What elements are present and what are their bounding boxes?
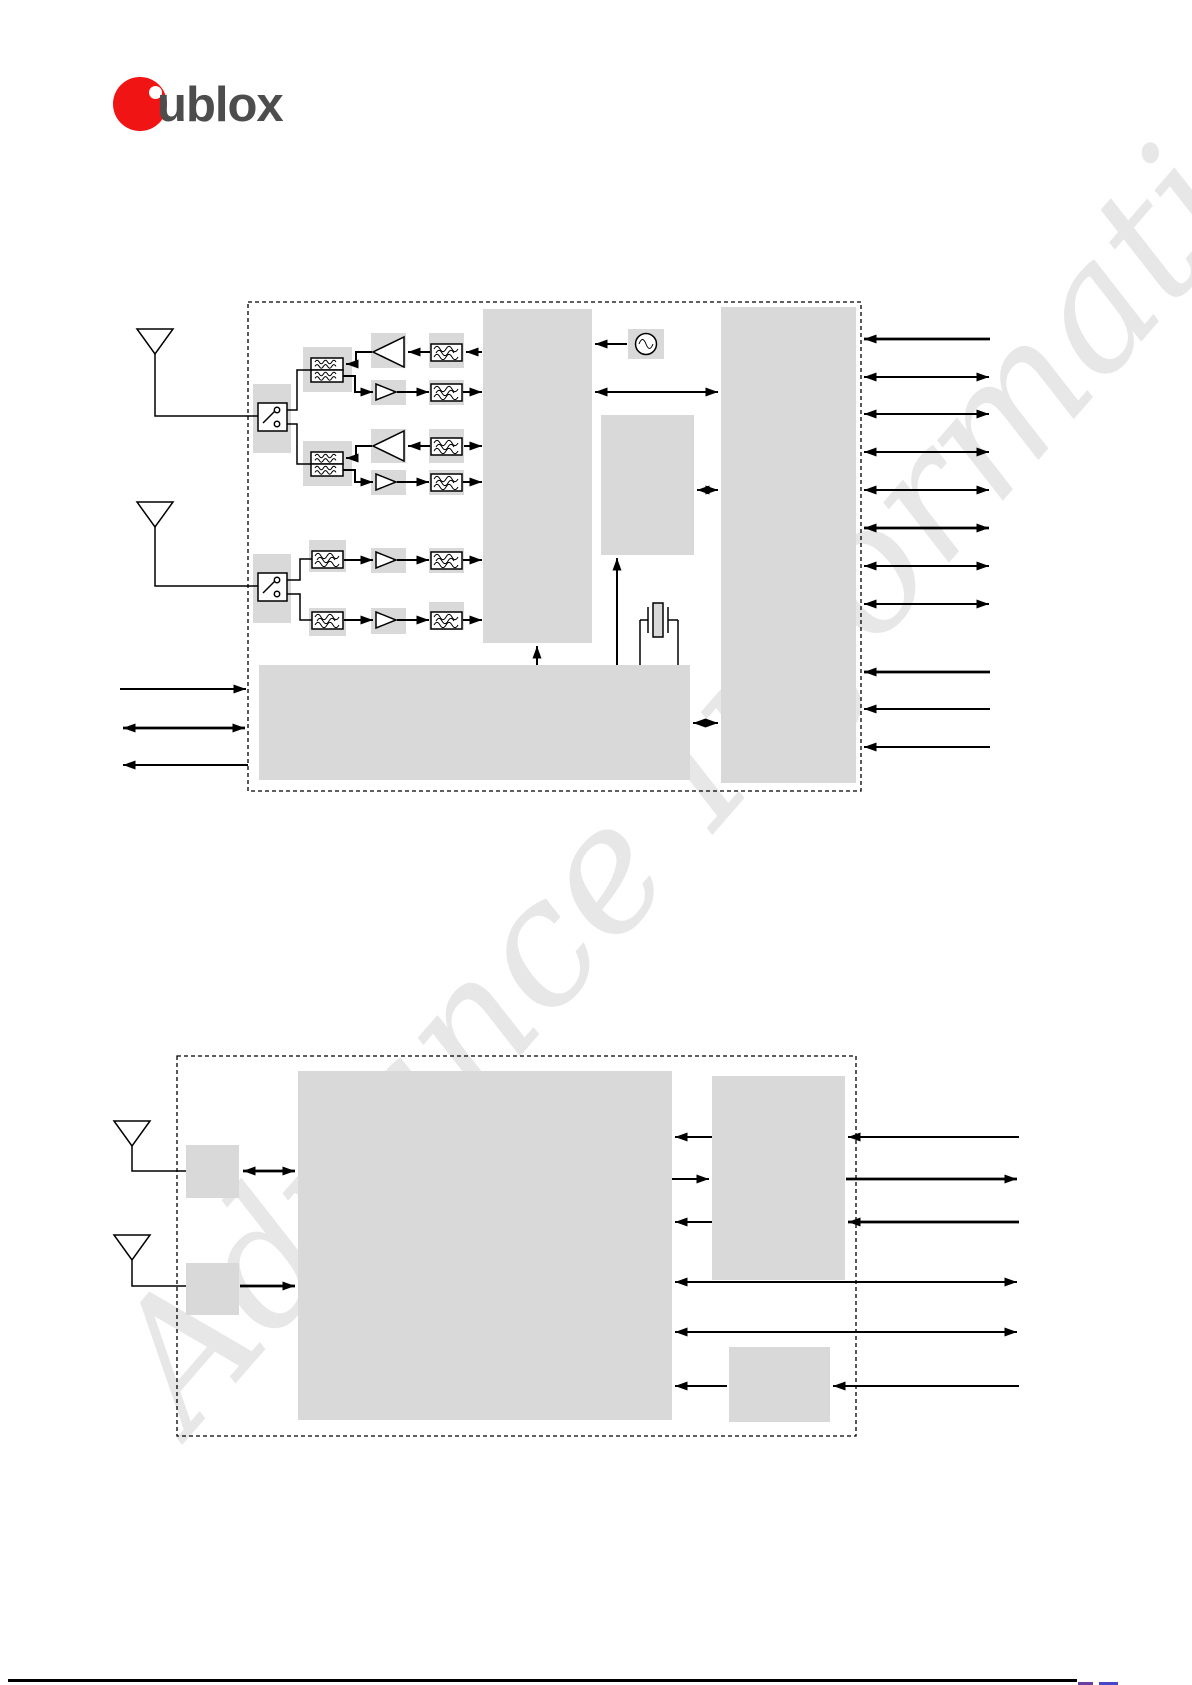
footer-rule xyxy=(8,1679,1077,1682)
div-filter2-icon xyxy=(312,612,343,629)
logo-blox: blox xyxy=(186,78,283,132)
filter6-icon xyxy=(431,612,462,629)
antenna-diversity-icon xyxy=(137,502,258,586)
antenna-3-icon xyxy=(114,1121,186,1171)
antenna-4-icon xyxy=(114,1235,186,1286)
main-ic-block xyxy=(298,1071,672,1420)
antenna-main-icon xyxy=(137,329,258,416)
filter2-icon xyxy=(431,384,462,401)
crystal-icon xyxy=(640,603,678,665)
io-interface-block xyxy=(712,1076,845,1280)
filter5-icon xyxy=(431,552,462,569)
left-io-arrows xyxy=(120,689,248,765)
div-filter1-icon xyxy=(312,551,343,568)
power-management-block xyxy=(259,665,690,780)
filter4-icon xyxy=(431,474,462,491)
rf-switch2-icon xyxy=(258,573,287,601)
rf-switch1-icon xyxy=(258,403,287,431)
duplexer1-icon xyxy=(311,358,343,382)
logo-wordmark: ublox xyxy=(157,77,283,133)
antenna-pad-1 xyxy=(186,1145,239,1198)
oscillator-icon xyxy=(595,334,657,355)
baseband-block xyxy=(721,307,856,783)
figure2-module-diagram xyxy=(114,1056,1019,1436)
logo-u: u xyxy=(157,78,186,132)
right-io-arrows xyxy=(864,339,990,747)
aux-block xyxy=(729,1347,830,1422)
figure1-cellular-module-diagram xyxy=(120,302,990,791)
antenna-pad-2 xyxy=(186,1263,239,1315)
filter1-icon xyxy=(431,344,462,361)
memory-block xyxy=(601,415,694,555)
document-page: Advance Information ublox xyxy=(0,0,1192,1685)
transceiver-block xyxy=(483,309,592,643)
filter3-icon xyxy=(431,438,462,455)
duplexer2-icon xyxy=(311,452,343,476)
ublox-logo: ublox xyxy=(113,77,333,137)
block-diagrams xyxy=(0,0,1192,1685)
